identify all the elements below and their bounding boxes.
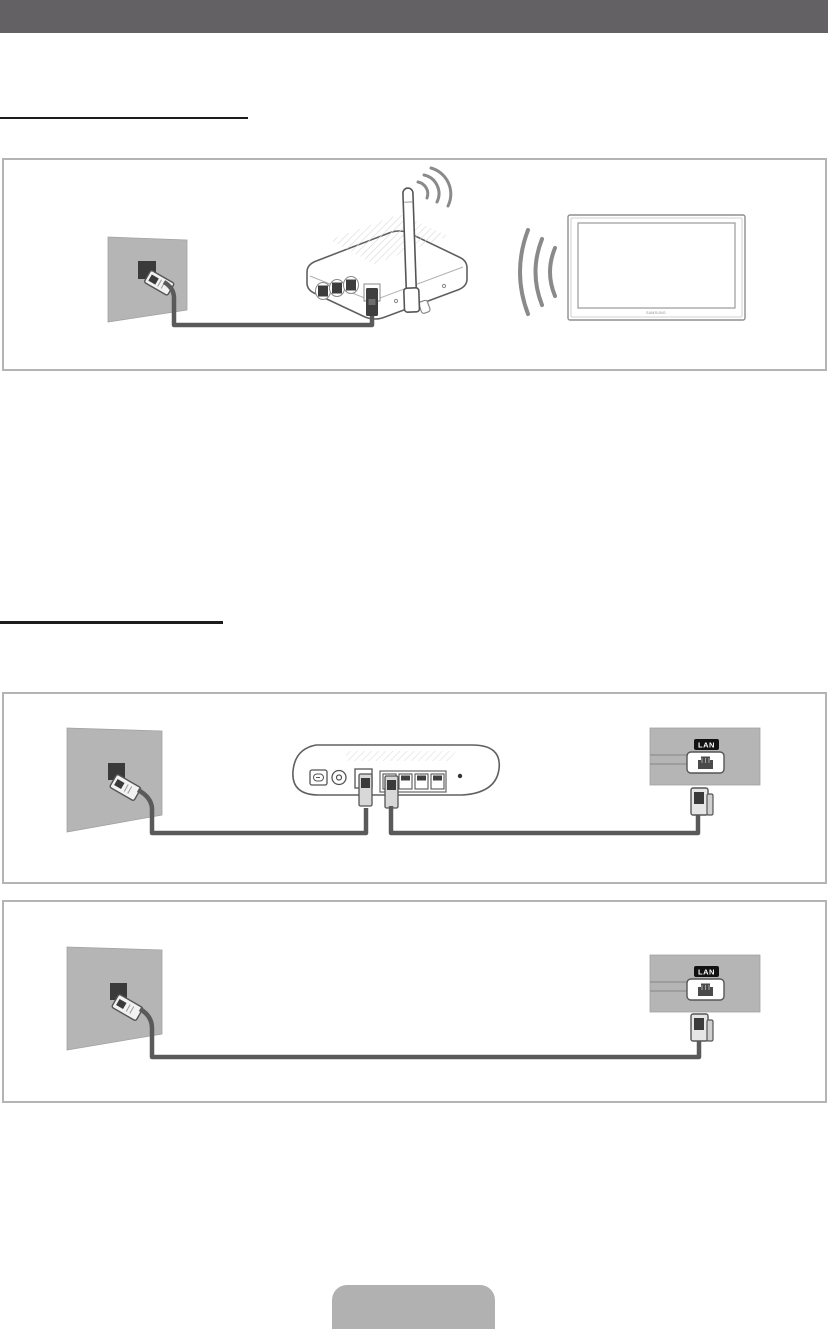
wifi-waves-tv-icon — [520, 230, 555, 314]
power-jack-icon — [332, 771, 346, 785]
wireless-router — [307, 214, 467, 319]
power-switch-icon — [310, 770, 327, 785]
wireless-section-heading-underline — [0, 117, 248, 119]
lan-badge-label: LAN — [698, 968, 715, 977]
tv-screen — [578, 223, 735, 308]
wireless-connection-diagram: SAMSUNG — [2, 158, 827, 371]
router-plug — [364, 284, 380, 316]
wireless-diagram-canvas: SAMSUNG — [4, 160, 825, 369]
tv: SAMSUNG — [568, 215, 745, 320]
wall-outlet — [67, 728, 162, 832]
top-title-bar — [0, 0, 828, 33]
wifi-waves-router-icon — [418, 168, 451, 206]
ethernet-cable — [140, 1009, 699, 1057]
modem-reset-dot — [458, 774, 462, 778]
direct-diagram-canvas: LAN — [4, 902, 825, 1101]
lan-badge-label: LAN — [698, 741, 715, 750]
modem-vent-texture — [344, 751, 456, 761]
tv-lan-panel: LAN — [650, 728, 760, 815]
wired-section-heading-underline — [0, 621, 223, 624]
page-nav-button[interactable] — [332, 1285, 495, 1329]
external-modem — [293, 745, 499, 808]
wall-outlet — [67, 947, 162, 1050]
rj45-plug-icon — [691, 788, 713, 815]
manual-page: SAMSUNG — [0, 0, 828, 1329]
modem-connection-diagram: LAN — [2, 692, 827, 884]
tv-lan-panel: LAN — [650, 955, 760, 1041]
ethernet-cable-wall-to-modem — [138, 790, 366, 833]
direct-lan-connection-diagram: LAN — [2, 900, 827, 1103]
rj45-plug-icon — [691, 1014, 713, 1041]
modem-diagram-canvas: LAN — [4, 694, 825, 882]
ethernet-cable-modem-to-tv — [391, 806, 698, 833]
samsung-logo: SAMSUNG — [646, 311, 666, 315]
